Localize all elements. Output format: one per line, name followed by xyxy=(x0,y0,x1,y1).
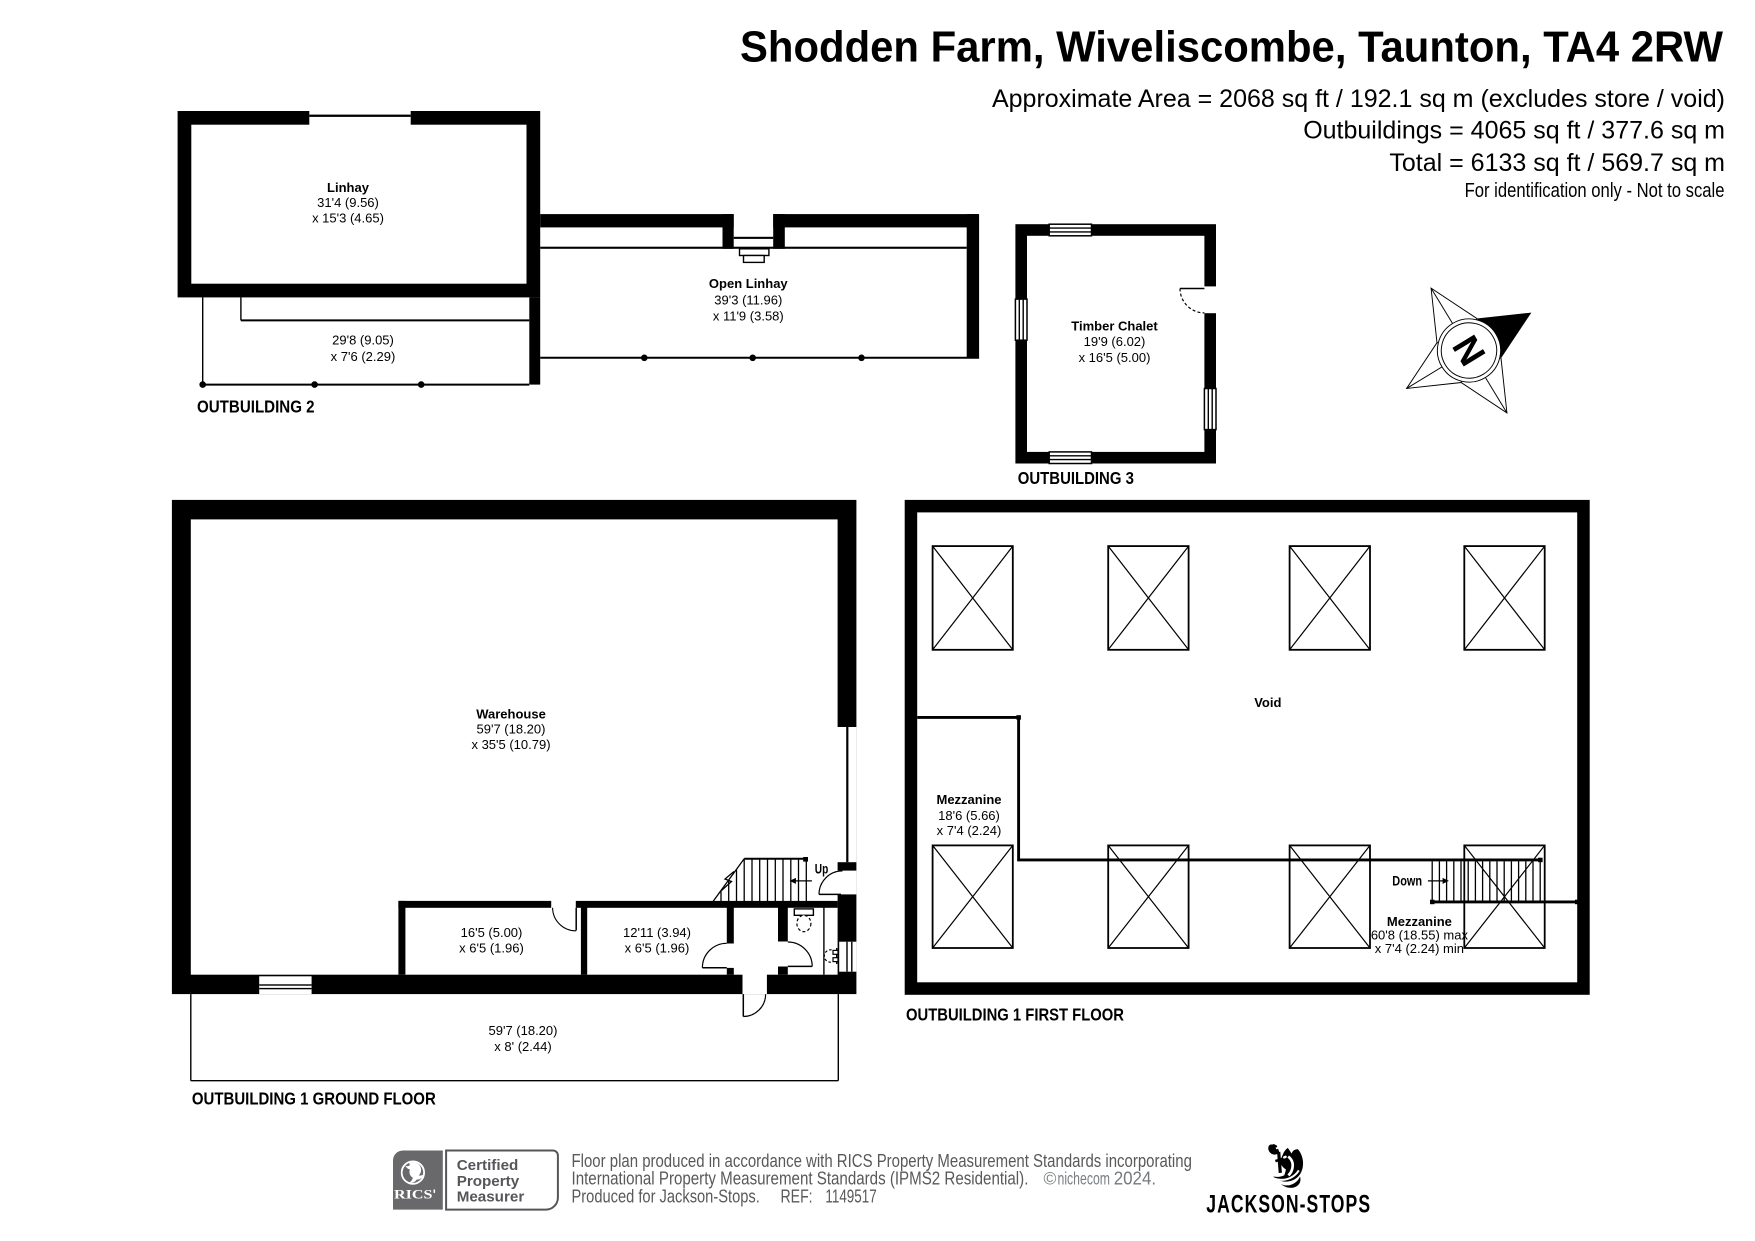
svg-text:19'9 (6.02): 19'9 (6.02) xyxy=(1084,334,1146,349)
svg-text:Open Linhay: Open Linhay xyxy=(709,276,789,291)
svg-text:Void: Void xyxy=(1254,695,1281,710)
svg-text:Measurer: Measurer xyxy=(457,1189,525,1206)
svg-text:x 15'3 (4.65): x 15'3 (4.65) xyxy=(312,210,384,225)
svg-text:x 6'5 (1.96): x 6'5 (1.96) xyxy=(625,941,690,956)
svg-text:x 16'5 (5.00): x 16'5 (5.00) xyxy=(1079,350,1151,365)
svg-text:For identification only - Not: For identification only - Not to scale xyxy=(1465,179,1725,202)
svg-text:Shodden Farm, Wiveliscombe, Ta: Shodden Farm, Wiveliscombe, Taunton, TA4… xyxy=(740,23,1723,72)
svg-text:Mezzanine: Mezzanine xyxy=(936,792,1001,807)
svg-text:Timber Chalet: Timber Chalet xyxy=(1071,319,1158,334)
svg-text:x 7'6 (2.29): x 7'6 (2.29) xyxy=(331,349,396,364)
svg-text:nichecom: nichecom xyxy=(1058,1169,1111,1189)
svg-text:Up: Up xyxy=(815,862,829,877)
svg-text:Produced for Jackson-Stops.: Produced for Jackson-Stops. xyxy=(572,1185,760,1206)
svg-text:Down: Down xyxy=(1392,873,1422,888)
svg-text:x 6'5 (1.96): x 6'5 (1.96) xyxy=(459,941,524,956)
svg-text:©: © xyxy=(1044,1169,1057,1189)
svg-text:OUTBUILDING 1 GROUND FLOOR: OUTBUILDING 1 GROUND FLOOR xyxy=(192,1089,436,1109)
svg-text:18'6 (5.66): 18'6 (5.66) xyxy=(938,808,1000,823)
svg-text:39'3 (11.96): 39'3 (11.96) xyxy=(714,292,782,307)
svg-text:31'4 (9.56): 31'4 (9.56) xyxy=(317,195,379,210)
svg-text:x 8' (2.44): x 8' (2.44) xyxy=(494,1039,551,1054)
svg-text:OUTBUILDING 3: OUTBUILDING 3 xyxy=(1018,468,1134,488)
svg-text:29'8 (9.05): 29'8 (9.05) xyxy=(332,333,394,348)
svg-text:Certified: Certified xyxy=(457,1157,519,1174)
svg-text:x 11'9 (3.58): x 11'9 (3.58) xyxy=(713,309,784,324)
svg-text:REF:: REF: xyxy=(781,1185,813,1206)
svg-text:OUTBUILDING 1 FIRST FLOOR: OUTBUILDING 1 FIRST FLOOR xyxy=(906,1005,1124,1025)
svg-text:59'7 (18.20): 59'7 (18.20) xyxy=(477,722,546,737)
svg-text:x 7'4 (2.24) min: x 7'4 (2.24) min xyxy=(1375,941,1464,956)
svg-text:Approximate Area = 2068 sq ft: Approximate Area = 2068 sq ft / 192.1 sq… xyxy=(992,85,1725,113)
svg-text:16'5 (5.00): 16'5 (5.00) xyxy=(461,925,523,940)
svg-text:Outbuildings = 4065 sq ft / 37: Outbuildings = 4065 sq ft / 377.6 sq m xyxy=(1303,117,1725,145)
svg-text:Warehouse: Warehouse xyxy=(476,706,546,721)
svg-text:12'11 (3.94): 12'11 (3.94) xyxy=(623,925,691,940)
svg-text:1149517: 1149517 xyxy=(825,1185,876,1206)
svg-text:2024.: 2024. xyxy=(1114,1168,1156,1189)
svg-text:x 35'5 (10.79): x 35'5 (10.79) xyxy=(471,737,550,752)
svg-text:OUTBUILDING 2: OUTBUILDING 2 xyxy=(197,396,315,416)
svg-text:RICS: RICS xyxy=(394,1187,432,1202)
svg-text:59'7 (18.20): 59'7 (18.20) xyxy=(489,1023,558,1038)
svg-text:Linhay: Linhay xyxy=(327,180,370,195)
svg-text:Total = 6133 sq ft / 569.7 sq: Total = 6133 sq ft / 569.7 sq m xyxy=(1389,149,1725,177)
svg-text:JACKSON-STOPS: JACKSON-STOPS xyxy=(1206,1191,1371,1219)
svg-text:x 7'4 (2.24): x 7'4 (2.24) xyxy=(937,823,1002,838)
svg-text:Property: Property xyxy=(457,1173,520,1190)
